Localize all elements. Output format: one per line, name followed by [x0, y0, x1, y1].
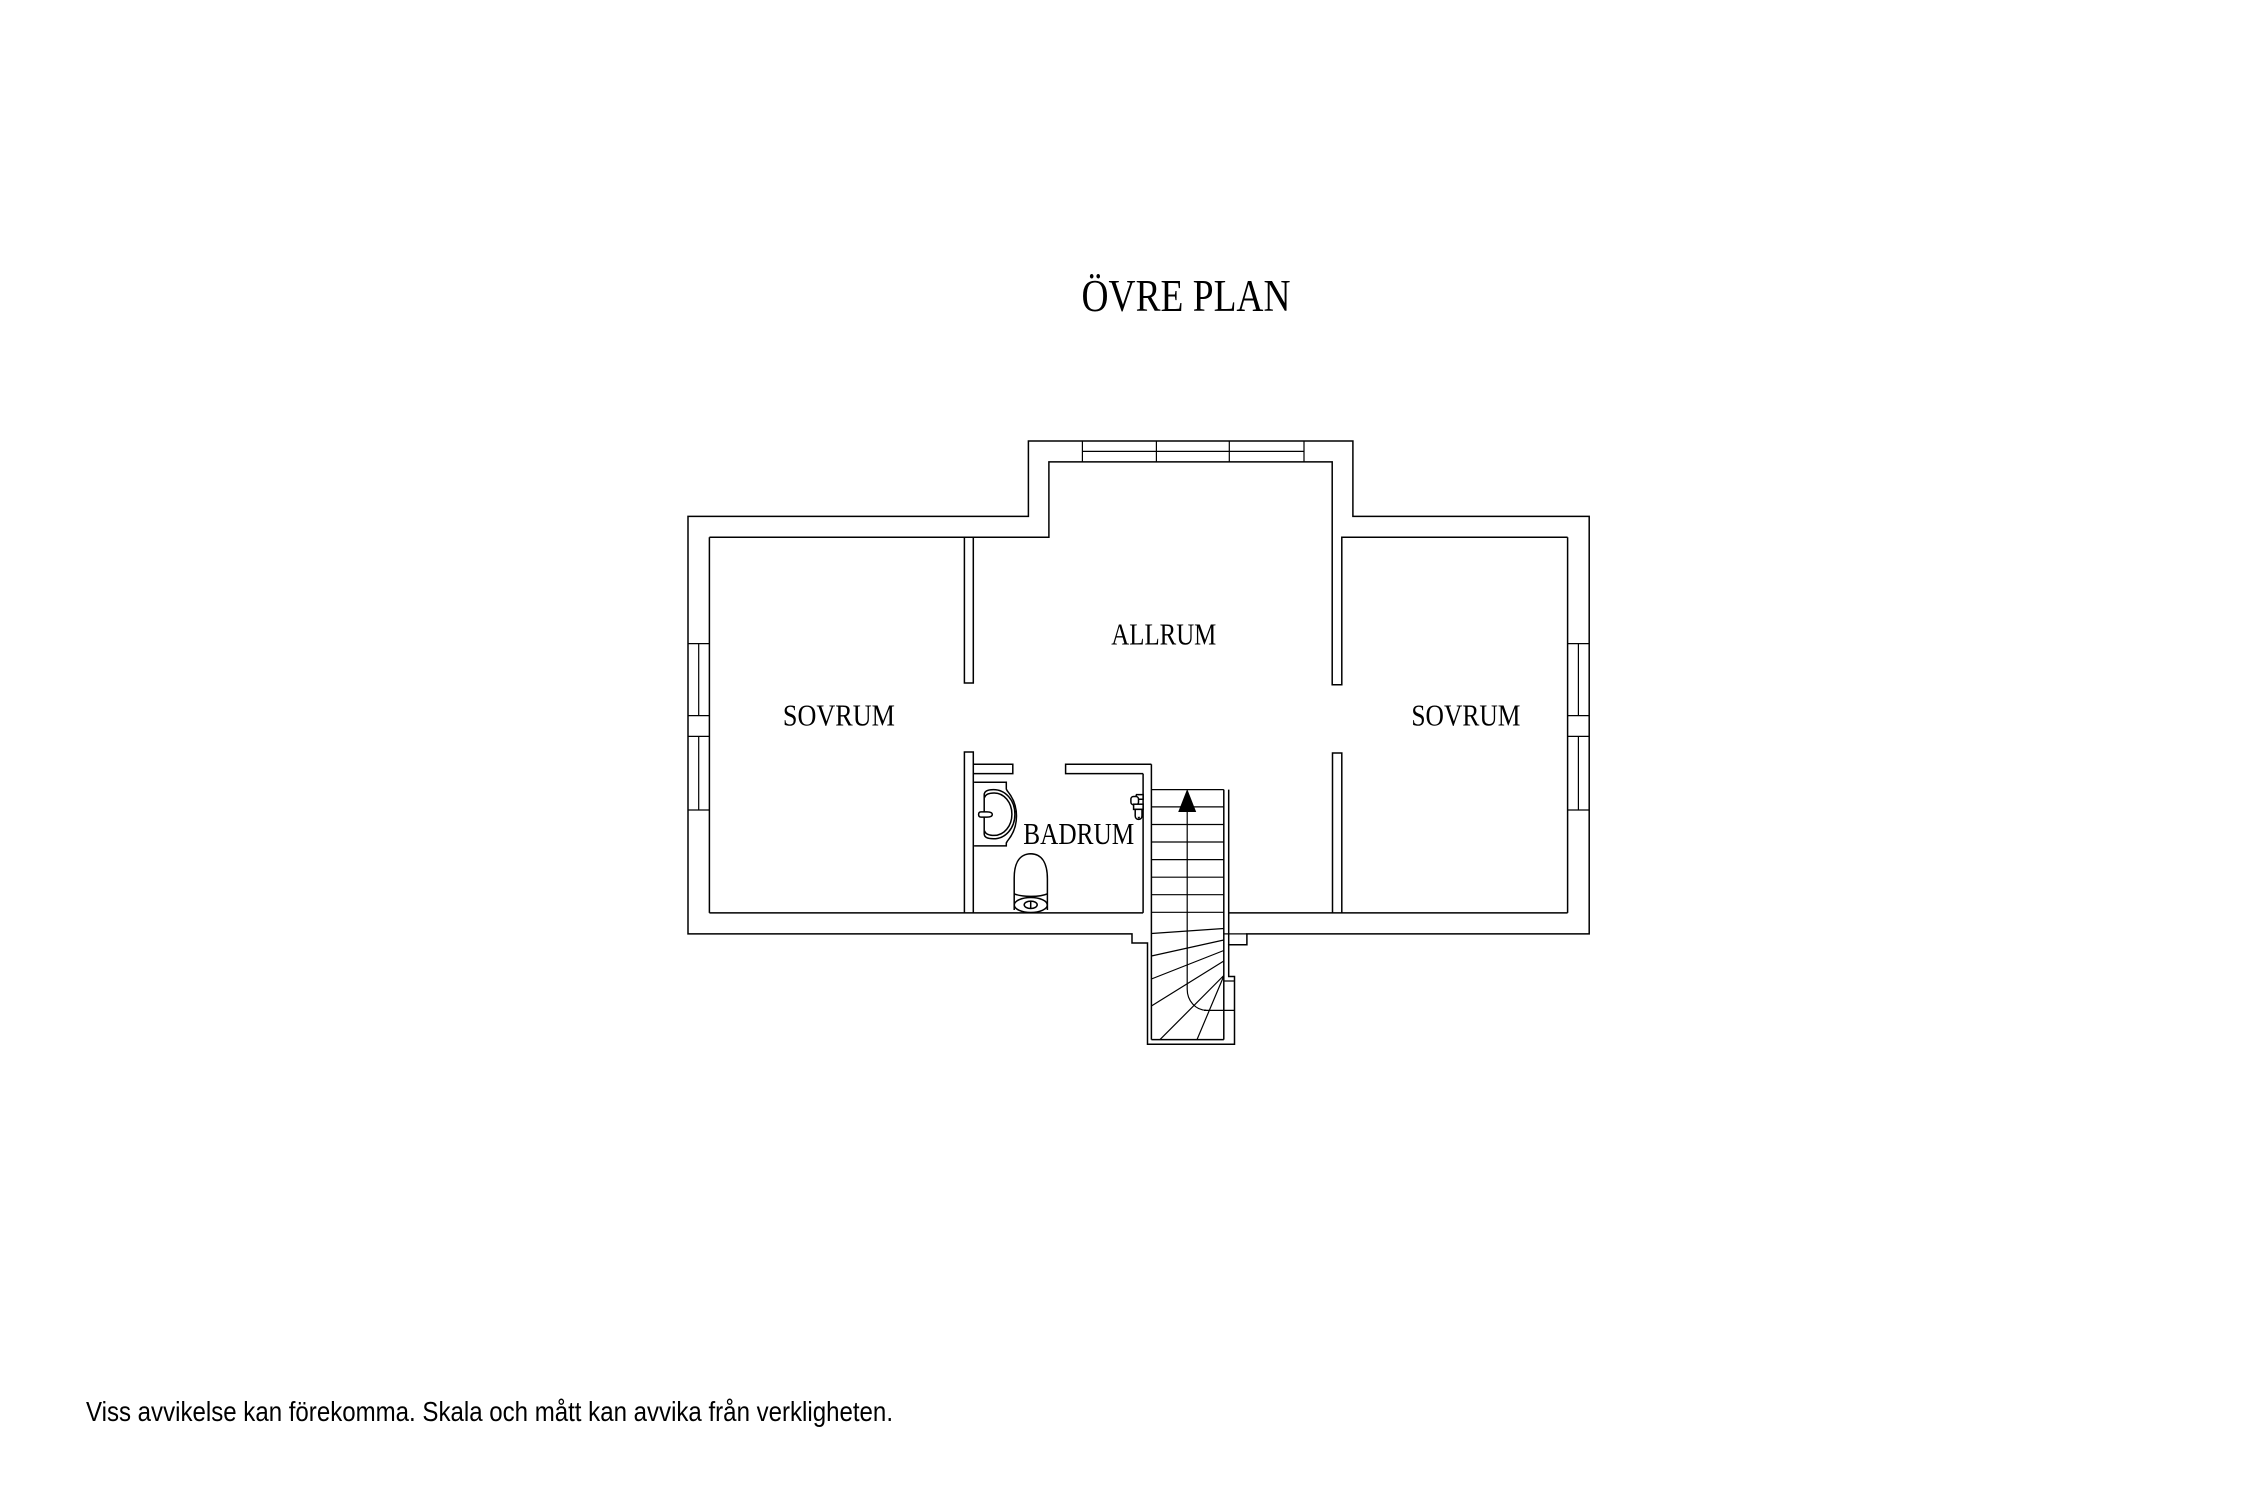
- svg-text:SOVRUM: SOVRUM: [1411, 698, 1520, 733]
- svg-text:SOVRUM: SOVRUM: [783, 698, 895, 733]
- svg-text:ÖVRE PLAN: ÖVRE PLAN: [1082, 271, 1291, 321]
- svg-text:ALLRUM: ALLRUM: [1111, 617, 1216, 652]
- svg-text:Viss avvikelse kan förekomma.: Viss avvikelse kan förekomma. Skala och …: [86, 1396, 893, 1427]
- svg-text:BADRUM: BADRUM: [1023, 816, 1134, 851]
